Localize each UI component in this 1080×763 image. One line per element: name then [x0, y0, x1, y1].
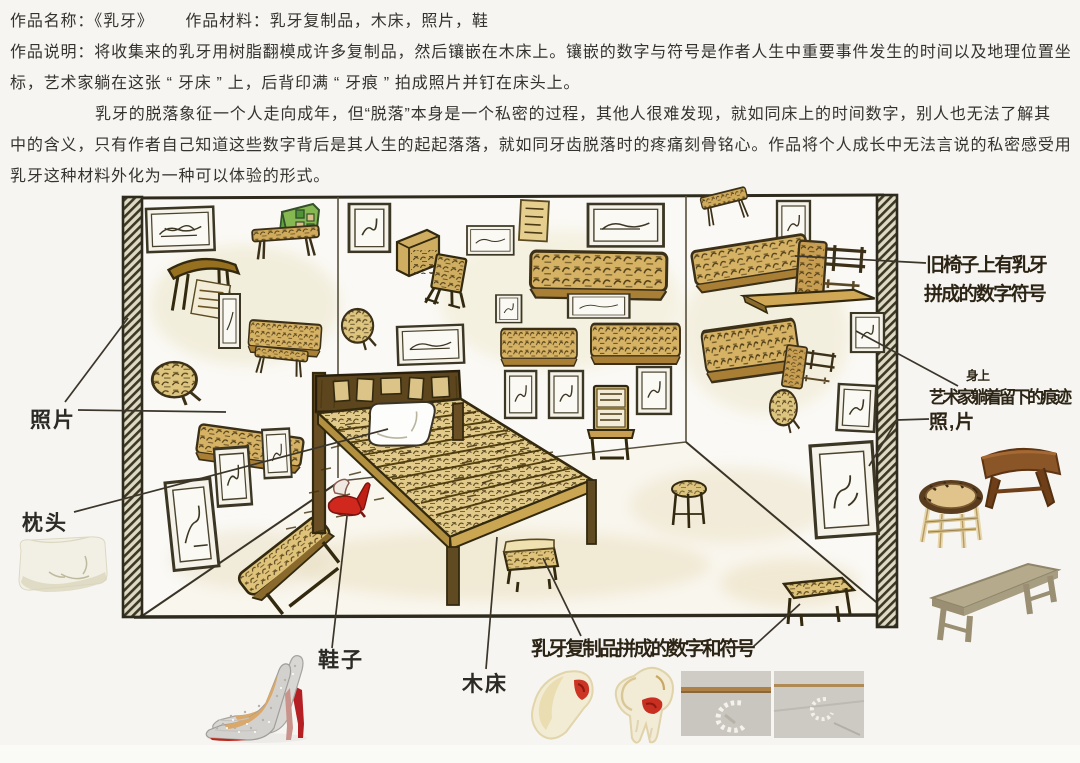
svg-text:旧椅子上有乳牙: 旧椅子上有乳牙 — [926, 253, 1048, 276]
svg-text:身上: 身上 — [966, 368, 991, 383]
svg-text:乳牙复制品拼成的数字和符号: 乳牙复制品拼成的数字和符号 — [531, 637, 755, 660]
svg-text:木床: 木床 — [461, 672, 508, 696]
svg-text:鞋子: 鞋子 — [318, 649, 364, 672]
svg-text:照,片: 照,片 — [929, 410, 975, 433]
svg-text:拼成的数字符号: 拼成的数字符号 — [924, 282, 1047, 305]
svg-text:艺术家躺着留下的痕迹: 艺术家躺着留下的痕迹 — [929, 387, 1072, 407]
svg-text:照片: 照片 — [30, 409, 76, 432]
svg-text:枕头: 枕头 — [22, 511, 68, 535]
